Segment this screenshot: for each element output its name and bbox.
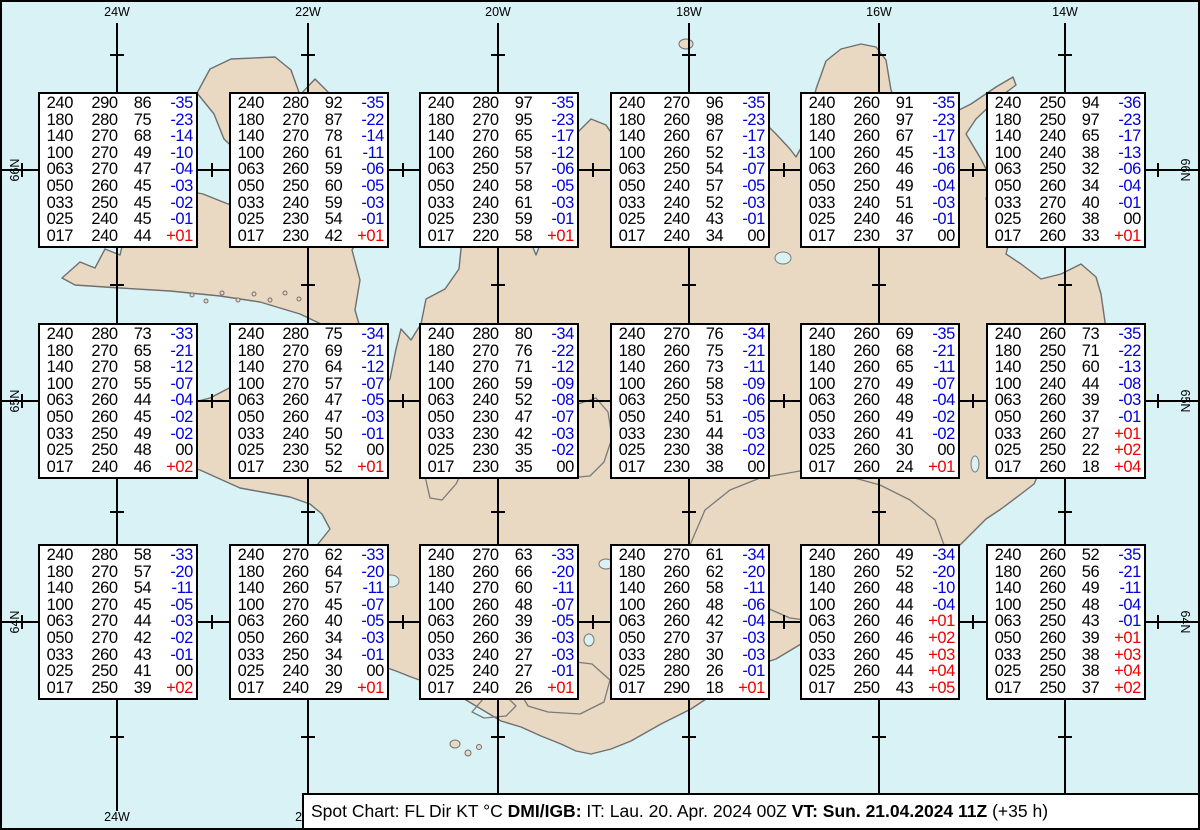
spot-row: 03324061-03 (424, 195, 574, 212)
spot-row: 24027076-34 (615, 326, 765, 343)
spot-row: 03326027+01 (991, 426, 1141, 443)
meridian-tick (682, 736, 696, 738)
wind-speed-value: 48 (503, 597, 532, 614)
wind-dir-value: 260 (459, 376, 499, 393)
wind-dir-value: 250 (840, 178, 880, 195)
wind-dir-value: 250 (1026, 343, 1066, 360)
wind-speed-value: 46 (884, 613, 913, 630)
temperature-value: -03 (918, 195, 955, 212)
wind-speed-value: 30 (694, 647, 723, 664)
temperature-value: -06 (537, 161, 574, 178)
meridian-tick (110, 284, 124, 286)
spot-table: 24027076-3418026075-2114026073-111002605… (610, 323, 770, 479)
parallel-tick (211, 163, 213, 177)
wind-speed-value: 54 (313, 211, 342, 228)
fl-value: 063 (615, 613, 645, 630)
fl-value: 050 (615, 409, 645, 426)
temperature-value: +02 (1104, 442, 1141, 459)
spot-row: 0172303500 (424, 459, 574, 476)
spot-table: 24025094-3618025097-2314024065-171002403… (986, 92, 1146, 248)
wind-dir-value: 250 (1026, 442, 1066, 459)
fl-value: 180 (234, 343, 264, 360)
spot-row: 06326044-04 (43, 392, 193, 409)
spot-table: 24029086-3518028075-2314027068-141002704… (38, 92, 198, 248)
fl-value: 140 (805, 128, 835, 145)
wind-dir-value: 270 (269, 112, 309, 129)
temperature-value: -20 (918, 564, 955, 581)
wind-dir-value: 260 (459, 564, 499, 581)
temperature-value: +01 (918, 459, 955, 476)
wind-speed-value: 61 (694, 547, 723, 564)
wind-dir-value: 260 (650, 359, 690, 376)
fl-value: 025 (991, 442, 1021, 459)
temperature-value: -01 (347, 647, 384, 664)
wind-speed-value: 50 (313, 426, 342, 443)
spot-row: 06326046-06 (805, 161, 955, 178)
wind-dir-value: 240 (78, 211, 118, 228)
wind-dir-value: 260 (78, 580, 118, 597)
wind-dir-value: 260 (840, 426, 880, 443)
fl-value: 100 (615, 145, 645, 162)
spot-row: 06325032-06 (991, 161, 1141, 178)
spot-row: 18026068-21 (805, 343, 955, 360)
wind-dir-value: 230 (459, 442, 499, 459)
wind-speed-value: 36 (503, 630, 532, 647)
spot-row: 18026098-23 (615, 112, 765, 129)
fl-value: 240 (424, 547, 454, 564)
temperature-value: +03 (1104, 647, 1141, 664)
temperature-value: -34 (537, 326, 574, 343)
wind-speed-value: 71 (1070, 343, 1099, 360)
wind-speed-value: 52 (884, 564, 913, 581)
spot-row: 06326042-04 (615, 613, 765, 630)
fl-value: 140 (234, 128, 264, 145)
spot-row: 05027037-03 (615, 630, 765, 647)
temperature-value: -04 (918, 178, 955, 195)
latitude-label-right: 66N (1178, 153, 1192, 187)
temperature-value: -05 (347, 613, 384, 630)
parallel-tick (592, 163, 594, 177)
latitude-label-left: 66N (8, 153, 22, 187)
spot-row: 05024058-05 (424, 178, 574, 195)
wind-dir-value: 260 (1026, 409, 1066, 426)
wind-speed-value: 45 (122, 178, 151, 195)
wind-dir-value: 270 (78, 630, 118, 647)
temperature-value: -05 (728, 178, 765, 195)
temperature-value: -05 (537, 613, 574, 630)
parallel-tick (592, 394, 594, 408)
temperature-value: -35 (918, 95, 955, 112)
parallel-tick (211, 615, 213, 629)
temperature-value: -01 (537, 663, 574, 680)
wind-dir-value: 260 (269, 613, 309, 630)
temperature-value: -11 (347, 145, 384, 162)
wind-speed-value: 35 (503, 442, 532, 459)
spot-row: 10026061-11 (234, 145, 384, 162)
wind-speed-value: 47 (313, 392, 342, 409)
temperature-value: -36 (1104, 95, 1141, 112)
meridian-tick (1058, 511, 1072, 513)
wind-dir-value: 270 (269, 359, 309, 376)
wind-dir-value: 260 (840, 326, 880, 343)
wind-speed-value: 49 (884, 178, 913, 195)
wind-speed-value: 26 (503, 680, 532, 697)
fl-value: 140 (43, 580, 73, 597)
temperature-value: -21 (347, 343, 384, 360)
meridian-tick (110, 511, 124, 513)
spot-row: 05026037-01 (991, 409, 1141, 426)
spot-row: 14027064-12 (234, 359, 384, 376)
temperature-value: -13 (918, 145, 955, 162)
spot-row: 05023047-07 (424, 409, 574, 426)
wind-speed-value: 38 (694, 442, 723, 459)
wind-speed-value: 49 (884, 376, 913, 393)
spot-row: 14027060-11 (424, 580, 574, 597)
wind-dir-value: 260 (269, 145, 309, 162)
temperature-value: +01 (918, 613, 955, 630)
temperature-value: -05 (537, 178, 574, 195)
spot-row: 24028075-34 (234, 326, 384, 343)
fl-value: 017 (991, 228, 1021, 245)
fl-value: 050 (991, 630, 1021, 647)
temperature-value: -03 (1104, 392, 1141, 409)
wind-speed-value: 44 (884, 663, 913, 680)
temperature-value: -01 (1104, 613, 1141, 630)
fl-value: 063 (43, 161, 73, 178)
fl-value: 050 (43, 409, 73, 426)
fl-value: 017 (424, 680, 454, 697)
spot-row: 0172403400 (615, 228, 765, 245)
spot-row: 14025060-13 (991, 359, 1141, 376)
temperature-value: -07 (918, 376, 955, 393)
spot-table: 24027062-3318026064-2014026057-111002704… (229, 544, 389, 700)
longitude-label-top: 14W (1045, 5, 1085, 19)
spot-row: 01723052+01 (234, 459, 384, 476)
fl-value: 017 (615, 228, 645, 245)
spot-row: 0252403000 (234, 663, 384, 680)
fl-value: 240 (991, 95, 1021, 112)
wind-dir-value: 240 (650, 178, 690, 195)
temperature-value: +01 (347, 459, 384, 476)
wind-speed-value: 65 (1070, 128, 1099, 145)
fl-value: 033 (43, 195, 73, 212)
wind-dir-value: 250 (1026, 161, 1066, 178)
wind-dir-value: 260 (1026, 564, 1066, 581)
wind-speed-value: 47 (313, 409, 342, 426)
fl-value: 100 (424, 145, 454, 162)
temperature-value: -02 (156, 195, 193, 212)
spot-row: 03324050-01 (234, 426, 384, 443)
fl-value: 063 (805, 161, 835, 178)
fl-value: 033 (615, 426, 645, 443)
temperature-value: 00 (347, 663, 384, 680)
spot-row: 14026057-11 (234, 580, 384, 597)
wind-speed-value: 95 (503, 112, 532, 129)
wind-dir-value: 270 (1026, 195, 1066, 212)
temperature-value: 00 (347, 442, 384, 459)
wind-dir-value: 260 (650, 564, 690, 581)
wind-dir-value: 270 (650, 95, 690, 112)
spot-row: 14027068-14 (43, 128, 193, 145)
meridian-tick (301, 511, 315, 513)
spot-row: 03325038+03 (991, 647, 1141, 664)
temperature-value: -01 (1104, 409, 1141, 426)
temperature-value: -20 (728, 564, 765, 581)
spot-row: 02525022+02 (991, 442, 1141, 459)
wind-dir-value: 260 (840, 343, 880, 360)
spot-row: 24026049-34 (805, 547, 955, 564)
wind-speed-value: 80 (503, 326, 532, 343)
fl-value: 180 (805, 112, 835, 129)
wind-speed-value: 40 (1070, 195, 1099, 212)
spot-row: 03327040-01 (991, 195, 1141, 212)
wind-dir-value: 260 (459, 613, 499, 630)
wind-dir-value: 250 (650, 392, 690, 409)
temperature-value: +01 (156, 228, 193, 245)
meridian-tick (1058, 284, 1072, 286)
spot-row: 18026064-20 (234, 564, 384, 581)
wind-dir-value: 260 (840, 564, 880, 581)
fl-value: 025 (234, 663, 264, 680)
fl-value: 033 (234, 426, 264, 443)
temperature-value: 00 (1104, 211, 1141, 228)
fl-value: 017 (234, 228, 264, 245)
wind-speed-value: 52 (694, 195, 723, 212)
fl-value: 140 (615, 128, 645, 145)
temperature-value: -20 (156, 564, 193, 581)
temperature-value: -07 (537, 409, 574, 426)
fl-value: 100 (424, 376, 454, 393)
spot-row: 02523054-01 (234, 211, 384, 228)
fl-value: 100 (991, 376, 1021, 393)
temperature-value: +04 (1104, 663, 1141, 680)
spot-row: 05025049-04 (805, 178, 955, 195)
spot-row: 18026066-20 (424, 564, 574, 581)
wind-dir-value: 270 (78, 128, 118, 145)
fl-value: 050 (234, 409, 264, 426)
temperature-value: -12 (537, 359, 574, 376)
temperature-value: -06 (918, 161, 955, 178)
longitude-label-top: 16W (859, 5, 899, 19)
wind-dir-value: 230 (269, 442, 309, 459)
wind-dir-value: 230 (650, 459, 690, 476)
fl-value: 180 (615, 343, 645, 360)
spot-row: 10026058-09 (615, 376, 765, 393)
temperature-value: -23 (918, 112, 955, 129)
fl-value: 180 (615, 112, 645, 129)
wind-dir-value: 270 (459, 112, 499, 129)
fl-value: 017 (615, 680, 645, 697)
wind-dir-value: 260 (269, 409, 309, 426)
parallel-tick (972, 163, 974, 177)
spot-row: 14027065-17 (424, 128, 574, 145)
wind-speed-value: 56 (1070, 564, 1099, 581)
spot-row: 03326041-02 (805, 426, 955, 443)
fl-value: 050 (424, 630, 454, 647)
wind-speed-value: 44 (122, 228, 151, 245)
fl-value: 140 (424, 128, 454, 145)
fl-value: 025 (43, 663, 73, 680)
wind-speed-value: 44 (884, 597, 913, 614)
temperature-value: -03 (728, 630, 765, 647)
wind-speed-value: 34 (694, 228, 723, 245)
wind-speed-value: 52 (694, 145, 723, 162)
wind-speed-value: 69 (884, 326, 913, 343)
spot-table: 24027061-3418026062-2014026058-111002604… (610, 544, 770, 700)
spot-row: 06325057-06 (424, 161, 574, 178)
wind-dir-value: 240 (459, 647, 499, 664)
temperature-value: -14 (156, 128, 193, 145)
temperature-value: -01 (156, 211, 193, 228)
wind-dir-value: 250 (459, 161, 499, 178)
temperature-value: -12 (347, 359, 384, 376)
temperature-value: -04 (918, 597, 955, 614)
wind-speed-value: 45 (122, 195, 151, 212)
wind-dir-value: 230 (269, 459, 309, 476)
wind-dir-value: 240 (269, 195, 309, 212)
spot-row: 06326059-06 (234, 161, 384, 178)
fl-value: 050 (424, 409, 454, 426)
fl-value: 140 (424, 580, 454, 597)
wind-speed-value: 91 (884, 95, 913, 112)
spot-row: 02525038+04 (991, 663, 1141, 680)
wind-speed-value: 46 (884, 161, 913, 178)
spot-row: 01722058+01 (424, 228, 574, 245)
temperature-value: 00 (156, 442, 193, 459)
spot-row: 10026052-13 (615, 145, 765, 162)
wind-dir-value: 240 (459, 178, 499, 195)
fl-value: 100 (805, 376, 835, 393)
wind-speed-value: 51 (694, 409, 723, 426)
wind-speed-value: 42 (694, 613, 723, 630)
fl-value: 240 (991, 326, 1021, 343)
wind-dir-value: 240 (269, 680, 309, 697)
fl-value: 025 (805, 211, 835, 228)
wind-speed-value: 18 (1070, 459, 1099, 476)
temperature-value: -07 (347, 597, 384, 614)
spot-row: 06326039-03 (991, 392, 1141, 409)
spot-row: 18026056-21 (991, 564, 1141, 581)
meridian-tick (872, 511, 886, 513)
latitude-label-right: 64N (1178, 605, 1192, 639)
fl-value: 017 (43, 228, 73, 245)
spot-row: 02524027-01 (424, 663, 574, 680)
fl-value: 100 (234, 145, 264, 162)
temperature-value: -06 (728, 392, 765, 409)
wind-dir-value: 270 (78, 376, 118, 393)
temperature-value: -01 (918, 211, 955, 228)
temperature-value: -06 (1104, 161, 1141, 178)
wind-dir-value: 230 (840, 228, 880, 245)
spot-row: 24027062-33 (234, 547, 384, 564)
wind-dir-value: 240 (459, 680, 499, 697)
wind-speed-value: 32 (1070, 161, 1099, 178)
temperature-value: -11 (1104, 580, 1141, 597)
spot-row: 18027087-22 (234, 112, 384, 129)
temperature-value: +04 (918, 663, 955, 680)
wind-dir-value: 260 (269, 392, 309, 409)
spot-row: 01726033+01 (991, 228, 1141, 245)
wind-speed-value: 58 (694, 376, 723, 393)
wind-speed-value: 37 (884, 228, 913, 245)
wind-speed-value: 54 (122, 580, 151, 597)
fl-value: 180 (424, 343, 454, 360)
wind-speed-value: 49 (122, 426, 151, 443)
wind-dir-value: 250 (1026, 359, 1066, 376)
spot-row: 01724029+01 (234, 680, 384, 697)
fl-value: 050 (991, 178, 1021, 195)
spot-row: 06327044-03 (43, 613, 193, 630)
wind-dir-value: 260 (78, 647, 118, 664)
spot-row: 10025048-04 (991, 597, 1141, 614)
wind-speed-value: 34 (1070, 178, 1099, 195)
spot-row: 05024057-05 (615, 178, 765, 195)
longitude-label-top: 18W (669, 5, 709, 19)
wind-dir-value: 290 (650, 680, 690, 697)
fl-value: 033 (43, 647, 73, 664)
meridian-tick (872, 284, 886, 286)
temperature-value: -35 (537, 95, 574, 112)
wind-dir-value: 240 (78, 459, 118, 476)
wind-dir-value: 260 (840, 580, 880, 597)
wind-dir-value: 260 (78, 178, 118, 195)
wind-dir-value: 260 (650, 128, 690, 145)
temperature-value: +01 (728, 680, 765, 697)
temperature-value: -23 (728, 112, 765, 129)
spot-row: 02524045-01 (43, 211, 193, 228)
wind-speed-value: 38 (694, 459, 723, 476)
wind-speed-value: 58 (503, 145, 532, 162)
spot-row: 10027049-10 (43, 145, 193, 162)
wind-dir-value: 250 (78, 426, 118, 443)
wind-speed-value: 75 (313, 326, 342, 343)
spot-row: 01724046+02 (43, 459, 193, 476)
fl-value: 240 (615, 547, 645, 564)
fl-value: 017 (805, 228, 835, 245)
fl-value: 063 (805, 613, 835, 630)
wind-speed-value: 96 (694, 95, 723, 112)
temperature-value: -01 (347, 426, 384, 443)
spot-row: 24027061-34 (615, 547, 765, 564)
wind-speed-value: 45 (122, 211, 151, 228)
fl-value: 063 (234, 613, 264, 630)
wind-dir-value: 230 (650, 442, 690, 459)
meridian-tick (682, 511, 696, 513)
wind-speed-value: 46 (122, 459, 151, 476)
spot-row: 03324052-03 (615, 195, 765, 212)
wind-dir-value: 230 (459, 211, 499, 228)
wind-dir-value: 240 (78, 228, 118, 245)
spot-row: 10026048-06 (615, 597, 765, 614)
temperature-value: 00 (728, 228, 765, 245)
wind-dir-value: 230 (269, 228, 309, 245)
fl-value: 100 (991, 145, 1021, 162)
longitude-label-bottom: 24W (97, 810, 137, 824)
wind-dir-value: 230 (650, 426, 690, 443)
fl-value: 025 (43, 211, 73, 228)
wind-dir-value: 260 (650, 112, 690, 129)
wind-dir-value: 260 (840, 630, 880, 647)
spot-row: 01725039+02 (43, 680, 193, 697)
wind-dir-value: 260 (1026, 459, 1066, 476)
wind-speed-value: 46 (884, 630, 913, 647)
spot-row: 02523035-02 (424, 442, 574, 459)
spot-row: 02524046-01 (805, 211, 955, 228)
spot-row: 24028073-33 (43, 326, 193, 343)
temperature-value: -17 (537, 128, 574, 145)
fl-value: 050 (805, 630, 835, 647)
spot-row: 18025097-23 (991, 112, 1141, 129)
